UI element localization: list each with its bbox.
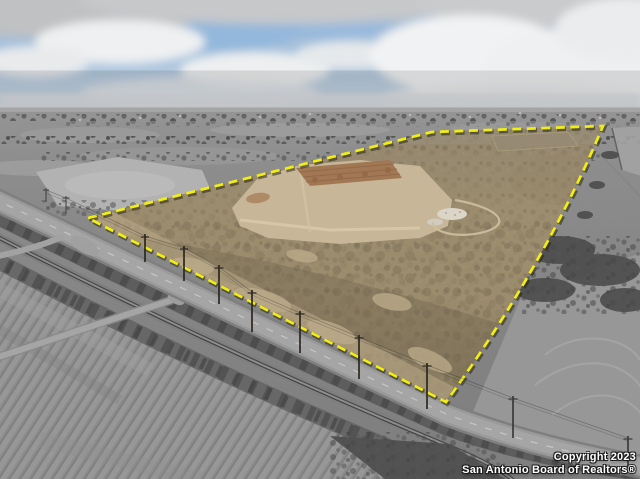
aerial-photo-canvas xyxy=(0,0,640,479)
listing-photo: Copyright 2023 San Antonio Board of Real… xyxy=(0,0,640,479)
sky xyxy=(0,0,640,116)
